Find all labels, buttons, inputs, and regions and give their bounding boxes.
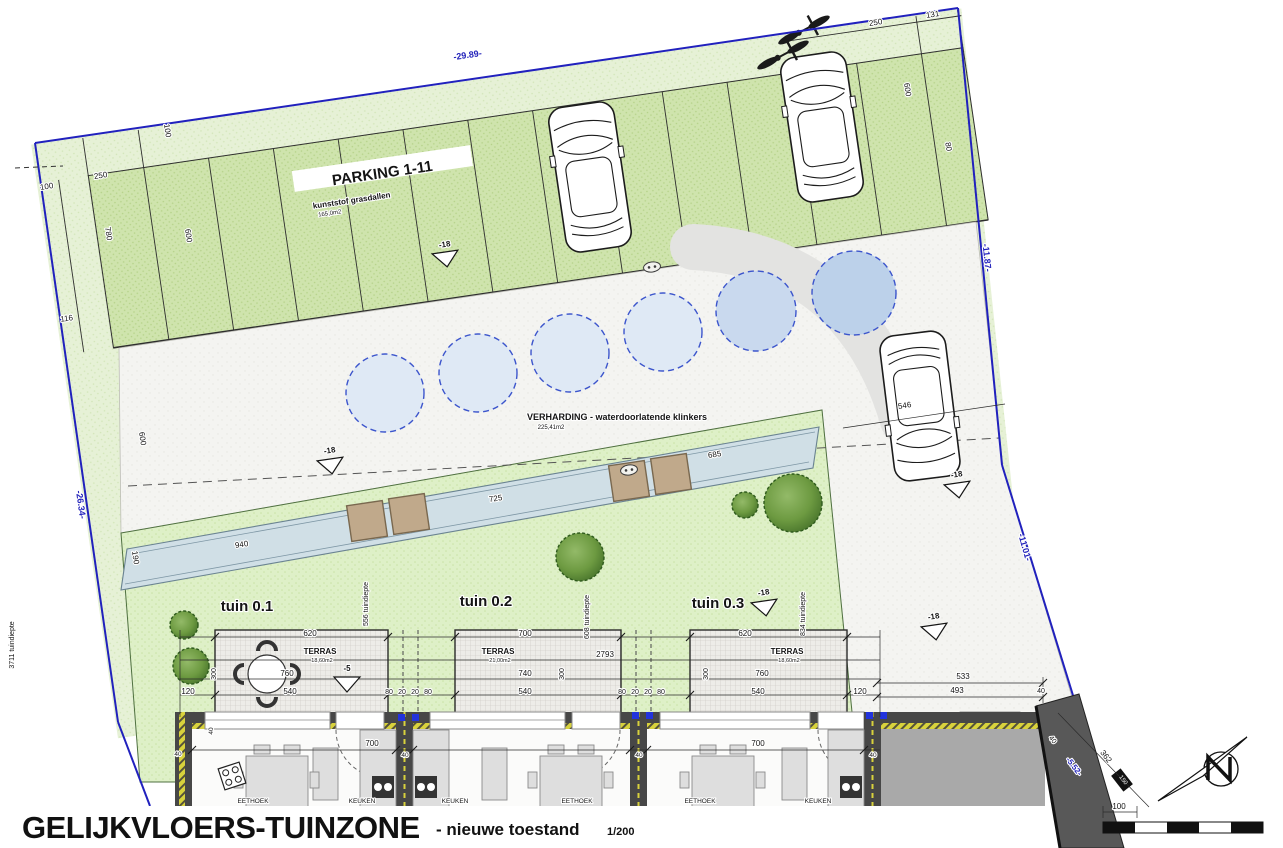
- room-label: EETHOEK: [684, 798, 716, 805]
- terrace-label: TERRAS: [771, 647, 805, 656]
- dim-label: 20: [644, 689, 652, 696]
- dim-label: 533: [956, 672, 970, 681]
- dim-label: 540: [518, 687, 532, 696]
- window: [430, 712, 565, 729]
- scale-bar: [1103, 822, 1263, 833]
- door-opening: [818, 712, 864, 729]
- dim-label: 20: [411, 689, 419, 696]
- door-opening: [572, 712, 620, 729]
- terrace-area-label: 18,60m2: [778, 658, 799, 664]
- page-title: GELIJKVLOERS-TUINZONE: [22, 810, 420, 845]
- dim-label: 620: [303, 629, 317, 638]
- dim-label: 116: [60, 313, 74, 324]
- dim-label: 80: [657, 689, 665, 696]
- dim-label: 540: [283, 687, 297, 696]
- paving-area-label: 225,41m2: [538, 425, 565, 431]
- dim-label: 40: [869, 752, 877, 759]
- level-label: -18: [927, 611, 940, 622]
- window: [660, 712, 810, 729]
- dim-label: 620: [738, 629, 752, 638]
- drawing-scale: 1/200: [607, 826, 635, 838]
- room-label: EETHOEK: [561, 798, 593, 805]
- room-label: KEUKEN: [349, 798, 376, 805]
- terrace-area-label: 21,00m2: [489, 658, 510, 664]
- dim-label: 100: [1112, 802, 1126, 811]
- dim-label: 80: [385, 689, 393, 696]
- garden-name: tuin 0.3: [692, 595, 745, 612]
- terrace-1: [215, 630, 388, 717]
- dim-label: 40: [1037, 688, 1045, 695]
- terrace-label: TERRAS: [482, 647, 516, 656]
- site-plan-canvas: GELIJKVLOERS-TUINZONE - nieuwe toestand …: [0, 0, 1283, 848]
- dim-label: 740: [518, 669, 532, 678]
- door-opening: [336, 712, 384, 729]
- dim-label: 80: [424, 689, 432, 696]
- level-label: -18: [757, 587, 770, 598]
- dim-label: 40: [208, 727, 215, 735]
- tree: [170, 611, 198, 639]
- terrace-area-label: 18,60m2: [311, 658, 332, 664]
- room-label: KEUKEN: [442, 798, 469, 805]
- window: [205, 712, 330, 729]
- level-label: -18: [438, 239, 451, 250]
- dim-label: 20: [398, 689, 406, 696]
- garden-name: tuin 0.2: [460, 593, 513, 610]
- dim-label: 300: [703, 668, 710, 680]
- room-label: EETHOEK: [237, 798, 269, 805]
- garden-depth-label: 834 tuindiepte: [800, 592, 807, 636]
- level-label: -18: [323, 445, 336, 456]
- dim-label: 120: [853, 687, 867, 696]
- facade-openings: [205, 712, 864, 729]
- dim-label: 493: [950, 686, 964, 695]
- page-subtitle: - nieuwe toestand: [436, 820, 580, 839]
- dim-label: 760: [755, 669, 769, 678]
- level-label: -18: [950, 469, 963, 480]
- dim-label: 80: [618, 689, 626, 696]
- site-plan-page: GELIJKVLOERS-TUINZONE - nieuwe toestand …: [0, 0, 1283, 848]
- tree: [173, 648, 209, 684]
- dim-label: 40: [174, 751, 182, 758]
- tree: [732, 492, 758, 518]
- garden-depth-label: 556 tuindiepte: [363, 582, 370, 626]
- dim-label: 40: [635, 752, 643, 759]
- room-label: KEUKEN: [805, 798, 832, 805]
- dim-label: 20: [631, 689, 639, 696]
- terrace-label: TERRAS: [304, 647, 338, 656]
- dim-label: 700: [365, 739, 379, 748]
- paving-label: VERHARDING - waterdoorlatende klinkers: [527, 412, 707, 422]
- garden-depth-label: 3711 tuindiepte: [9, 621, 16, 668]
- level-label: -5: [343, 664, 351, 673]
- dim-label: 700: [518, 629, 532, 638]
- dim-label: 120: [181, 687, 195, 696]
- dim-label: 760: [280, 669, 294, 678]
- dim-label: 300: [559, 668, 566, 680]
- dim-label: 700: [751, 739, 765, 748]
- garden-depth-label: 608 tuindiepte: [584, 595, 591, 639]
- dim-label: 40: [401, 752, 409, 759]
- dim-label: 540: [751, 687, 765, 696]
- dim-label: 300: [211, 668, 218, 680]
- garden-name: tuin 0.1: [221, 598, 274, 615]
- tree: [556, 533, 604, 581]
- tree: [764, 474, 822, 532]
- terrace-2: [455, 630, 621, 717]
- dim-label: 2793: [596, 650, 614, 659]
